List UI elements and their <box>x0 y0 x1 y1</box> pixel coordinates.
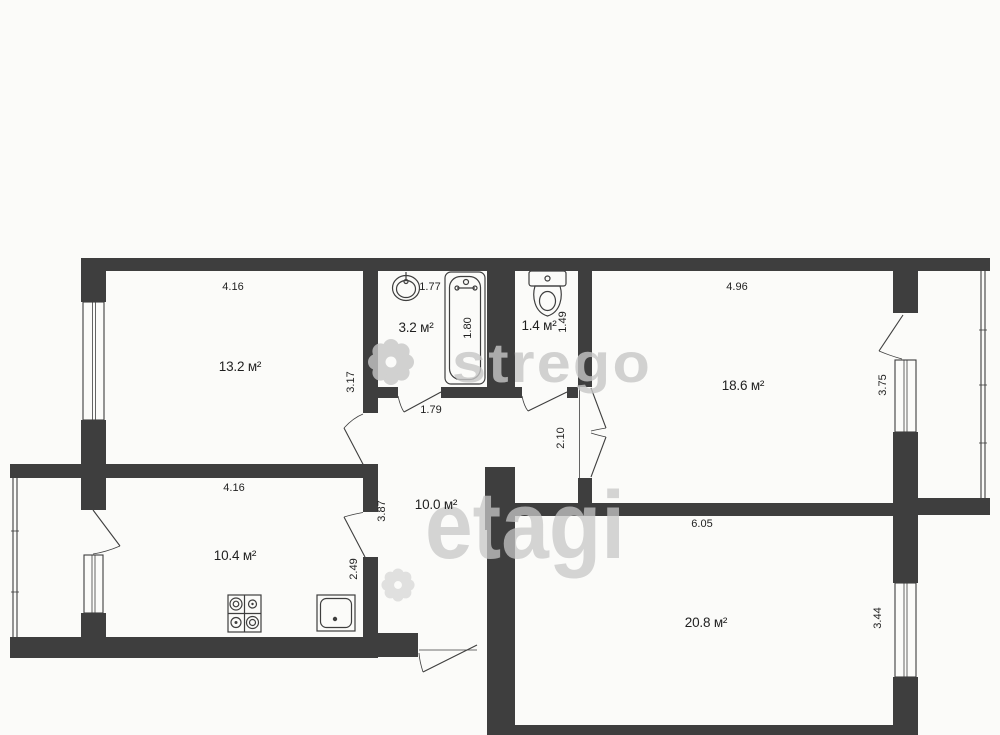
dim-hall-depth: 3.87 <box>376 500 388 521</box>
window-kitchen-left <box>84 555 103 613</box>
floorplan: strego etagi 4.16 1.77 1.80 1.49 4.96 3.… <box>0 0 1000 735</box>
dim-bath-door: 1.79 <box>420 404 441 416</box>
dim-kitchen-depth: 2.49 <box>348 558 360 579</box>
floorplan-drawing: strego etagi 4.16 1.77 1.80 1.49 4.96 3.… <box>0 0 1000 735</box>
dim-room13-depth: 3.17 <box>345 371 357 392</box>
watermark-text-center: etagi <box>425 472 625 579</box>
dim-tub-length: 1.80 <box>462 317 474 338</box>
kitchen-sink <box>317 595 355 631</box>
dim-room18-depth: 3.75 <box>877 374 889 395</box>
label-room18: 18.6 м² <box>722 378 765 393</box>
door-room13 <box>344 414 365 468</box>
dim-bath-width: 1.77 <box>419 281 440 293</box>
window-room13-left <box>83 302 104 420</box>
door-kitchen-balcony <box>93 510 120 554</box>
label-kitchen: 10.4 м² <box>214 548 257 563</box>
dim-wc-depth: 1.49 <box>557 311 569 332</box>
dim-room18-door: 2.10 <box>555 427 567 448</box>
door-kitchen <box>344 513 365 558</box>
watermark-text-top: strego <box>452 331 652 394</box>
dim-room20-width: 6.05 <box>691 518 712 530</box>
bath-sink <box>393 272 420 301</box>
window-room20-right <box>895 583 916 677</box>
label-hallway: 10.0 м² <box>415 497 458 512</box>
stove <box>228 595 261 632</box>
dim-kitchen-width: 4.16 <box>223 482 244 494</box>
label-room13: 13.2 м² <box>219 359 262 374</box>
door-room18-balcony <box>879 315 903 359</box>
dim-room20-depth: 3.44 <box>872 607 884 628</box>
dim-room13-width: 4.16 <box>222 281 243 293</box>
balcony-right-glazing <box>979 271 987 498</box>
door-wc <box>522 392 567 411</box>
door-entrance <box>419 645 477 672</box>
watermark-gear-icon-small <box>381 568 414 601</box>
door-room18-double <box>580 387 607 478</box>
label-wc: 1.4 м² <box>521 318 557 333</box>
window-room18-right <box>895 360 916 432</box>
label-room20: 20.8 м² <box>685 615 728 630</box>
dim-room18-width: 4.96 <box>726 281 747 293</box>
label-bathroom: 3.2 м² <box>398 320 434 335</box>
watermark-gear-icon <box>368 339 414 385</box>
balcony-left-glazing <box>11 478 19 648</box>
toilet <box>529 271 566 316</box>
